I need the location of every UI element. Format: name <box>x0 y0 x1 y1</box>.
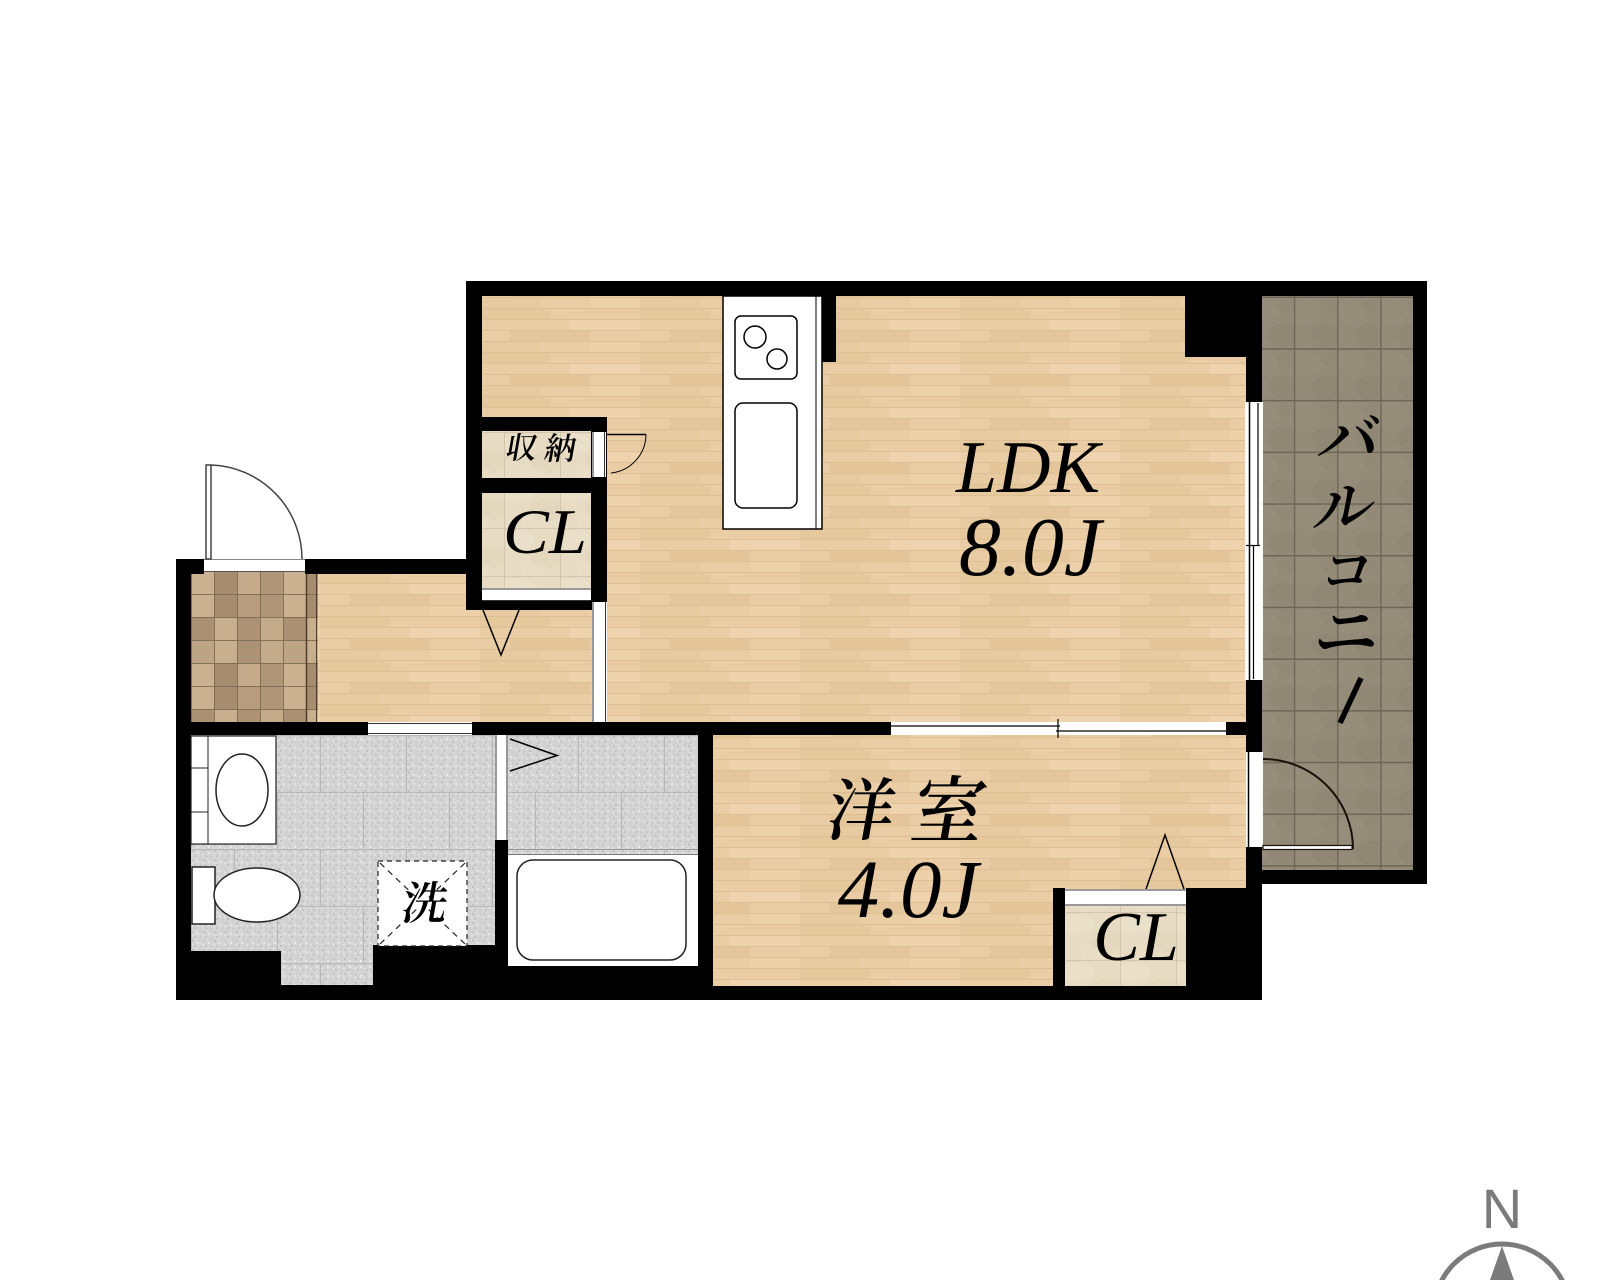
svg-text:8.0J: 8.0J <box>959 501 1105 594</box>
svg-text:N: N <box>1482 1177 1522 1240</box>
svg-text:LDK: LDK <box>955 427 1104 509</box>
svg-text:4.0J: 4.0J <box>838 843 983 935</box>
svg-text:CL: CL <box>1093 899 1179 976</box>
svg-text:CL: CL <box>503 497 587 567</box>
